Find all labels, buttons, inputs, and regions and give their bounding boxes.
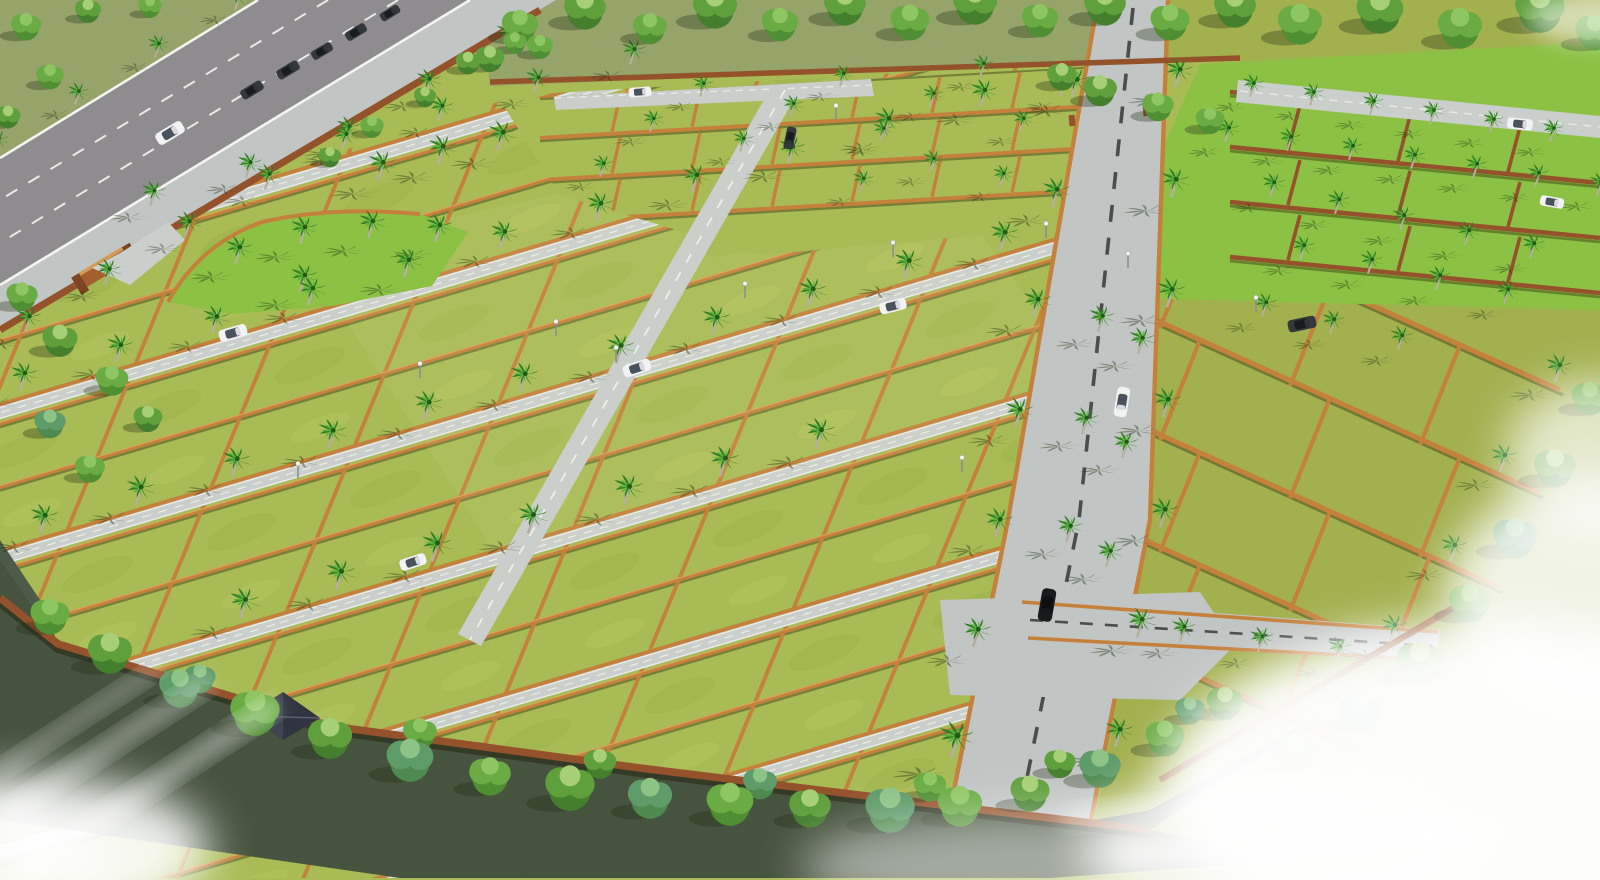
aerial-site-render [0, 0, 1600, 880]
render-canvas [0, 0, 1600, 880]
